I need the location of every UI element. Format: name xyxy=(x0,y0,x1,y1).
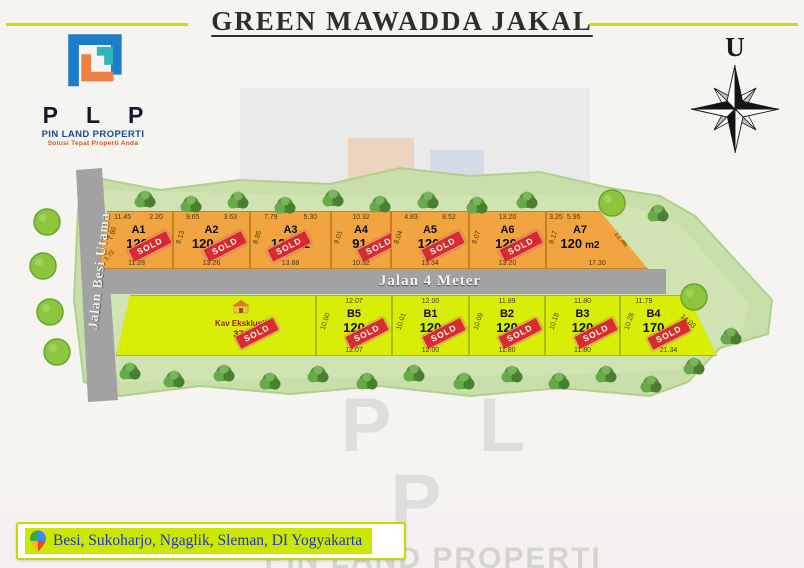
dim-bottom-label: 21.34 xyxy=(621,347,716,354)
dim-bottom-label: 13.26 xyxy=(174,260,249,267)
house-icon xyxy=(229,299,253,314)
lot-b3: 11.80 B3 120 SOLD 11.80 10.18 xyxy=(545,295,620,356)
dim-top-label: 11.89 xyxy=(470,296,544,305)
dim-top-label: 12.07 xyxy=(317,296,391,305)
lot-b1: 12.00 B1 120 SOLD 12.00 10.01 xyxy=(392,295,469,356)
dim-bottom-label: 13.34 xyxy=(392,260,468,267)
dim-bottom-label: 12.00 xyxy=(393,347,468,354)
lot-kav-eksklusif: Kav Eksklusif 371 SOLD xyxy=(116,295,316,356)
dim-bottom-label: 11.28 xyxy=(101,260,172,267)
compass: U xyxy=(683,34,787,162)
dim-bottom-label: 10.32 xyxy=(332,260,390,267)
lot-a6: 13.20 A6 120 SOLD 13.20 9.07 xyxy=(469,211,546,269)
lot-a4: 10.32 A4 91 SOLD 10.32 9.01 xyxy=(331,211,391,269)
compass-rose-icon xyxy=(687,61,783,157)
logo-letters: P L P xyxy=(28,102,158,129)
company-logo: P L P PIN LAND PROPERTI Solusi Tepat Pro… xyxy=(28,26,158,147)
dim-top-label: 3.255.95 xyxy=(547,212,583,221)
lot-a2: 9.653.63 A2 120m2 SOLD 13.26 9.13 xyxy=(173,211,250,269)
dim-top-label: 11.79 xyxy=(621,296,667,305)
logo-company-name: PIN LAND PROPERTI xyxy=(28,129,158,140)
dim-top-label: 12.00 xyxy=(393,296,468,305)
lot-a5: 4.838.52 A5 120 SOLD 13.34 8.04 xyxy=(391,211,469,269)
dim-bottom-label: 11.80 xyxy=(546,347,619,354)
logo-tagline: Solusi Tepat Properti Anda xyxy=(28,140,158,147)
lot-a3: 7.795.30 A3 120m2 SOLD 13.88 8.95 xyxy=(250,211,331,269)
dim-top-label: 13.20 xyxy=(470,212,545,221)
dim-top-label: 9.653.63 xyxy=(174,212,249,221)
dim-top-label: 11.80 xyxy=(546,296,619,305)
dim-top-label: 11.452.20 xyxy=(105,212,172,221)
compass-north-label: U xyxy=(683,34,787,61)
dim-bottom-label: 13.88 xyxy=(251,260,330,267)
dim-bottom-label: 17.30 xyxy=(547,260,647,267)
location-bar: Besi, Sukoharjo, Ngaglik, Sleman, DI Yog… xyxy=(16,522,406,560)
page-title: GREEN MAWADDA JAKAL xyxy=(211,6,593,36)
dim-bottom-label: 13.20 xyxy=(470,260,545,267)
plp-logo-icon xyxy=(57,26,129,96)
dim-bottom-label: 11.80 xyxy=(470,347,544,354)
lot-b2: 11.89 B2 120 SOLD 11.80 10.09 xyxy=(469,295,545,356)
road-label-horizontal: Jalan 4 Meter xyxy=(330,274,530,289)
location-text: Besi, Sukoharjo, Ngaglik, Sleman, DI Yog… xyxy=(53,532,362,550)
dim-top-label: 4.838.52 xyxy=(392,212,468,221)
dim-bottom-label: 12.07 xyxy=(317,347,391,354)
dim-top-label: 10.32 xyxy=(332,212,390,221)
flyer-canvas: GREEN MAWADDA JAKAL P L P PIN LAND PROPE… xyxy=(0,0,804,568)
location-highlight: Besi, Sukoharjo, Ngaglik, Sleman, DI Yog… xyxy=(25,528,372,554)
lot-b5: 12.07 B5 120 SOLD 12.07 10.00 xyxy=(316,295,392,356)
map-pin-icon xyxy=(30,530,46,552)
dim-top-label: 7.795.30 xyxy=(251,212,330,221)
kav-lot-content: Kav Eksklusif 371 SOLD xyxy=(195,299,287,340)
